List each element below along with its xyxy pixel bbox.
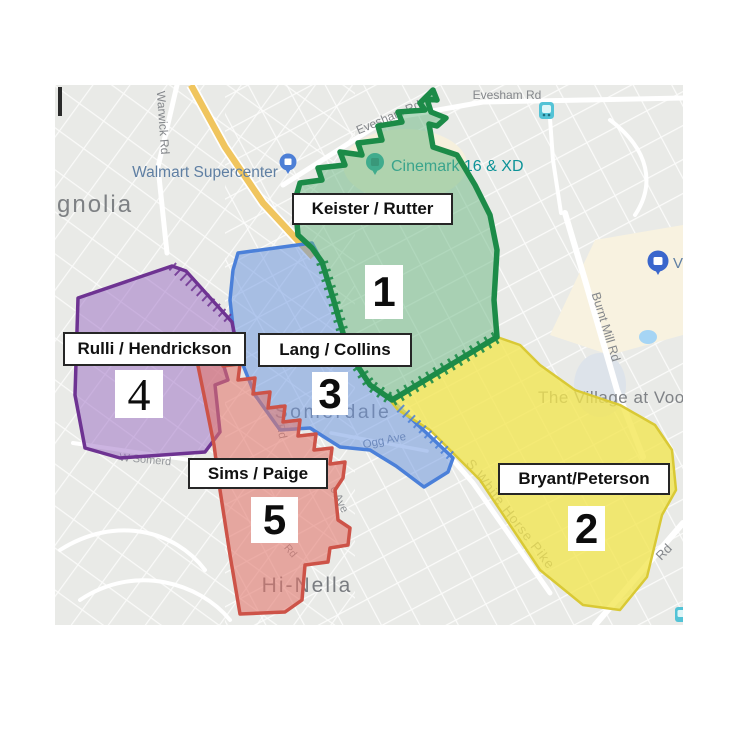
scan-artifact-mark [58, 87, 62, 116]
territory-5-name-box: Sims / Paige [188, 458, 328, 489]
pond [639, 330, 657, 344]
territory-2-name-box: Bryant/Peterson [498, 463, 670, 495]
territory-3-name-box: Lang / Collins [258, 333, 412, 367]
transit-station-icon[interactable] [539, 102, 554, 119]
territory-1-number: 1 [365, 265, 403, 319]
territory-1-owners: Keister / Rutter [312, 199, 434, 219]
territory-5-owners: Sims / Paige [208, 464, 308, 484]
territory-map: gnolia Somerdale Hi-Nella The Village at… [55, 85, 683, 625]
poi-label-voorhees-store: V [673, 255, 683, 272]
territory-4-owners: Rulli / Hendrickson [78, 339, 232, 359]
territory-3-owners: Lang / Collins [279, 340, 390, 360]
road-label-evesham-h: Evesham Rd [473, 88, 542, 102]
poi-label-walmart: Walmart Supercenter [132, 164, 278, 181]
territory-4-name-box: Rulli / Hendrickson [63, 332, 246, 366]
territory-3-number: 3 [312, 372, 348, 415]
town-label-magnolia: gnolia [57, 191, 133, 218]
territory-2-number: 2 [568, 506, 605, 551]
territory-4-number: 4 [115, 370, 163, 418]
territory-2-owners: Bryant/Peterson [518, 469, 649, 489]
territory-1-name-box: Keister / Rutter [292, 193, 453, 225]
screenshot-stage: gnolia Somerdale Hi-Nella The Village at… [0, 0, 738, 738]
transit-station-icon-bottom[interactable] [675, 607, 683, 622]
territory-5-number: 5 [251, 497, 298, 543]
